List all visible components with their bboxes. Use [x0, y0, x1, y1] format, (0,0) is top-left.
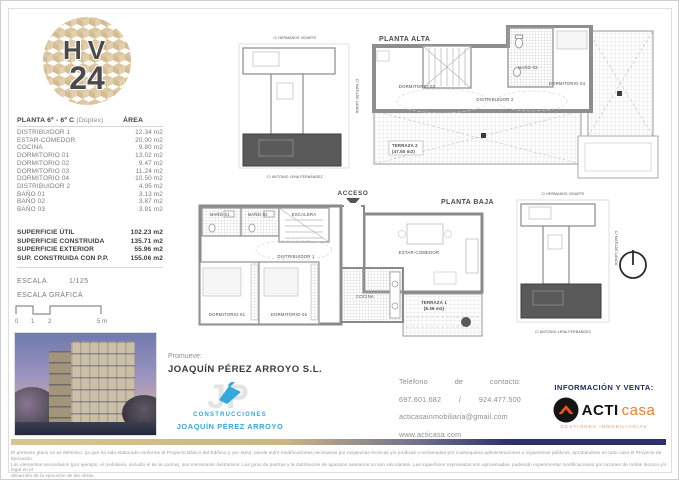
logo-text-bottom: 24 [69, 60, 105, 96]
hv24-logo: HV 24 [41, 15, 133, 107]
scale-line: ESCALA 1/125 [17, 278, 89, 285]
contact-email: acticasainmobiliaria@gmail.com [399, 412, 521, 421]
scale-tick-0: 0 [15, 319, 19, 325]
legal-disclaimer: El presente plano no es definitivo, ya q… [11, 450, 669, 479]
terraza1-label: TERRAZA 1 [421, 300, 447, 305]
table-row: DORMITORIO 0311.24 m2 [17, 168, 163, 176]
graphic-scale-bar: 0 1 2 5 m [15, 302, 125, 326]
entry-opening [344, 203, 361, 209]
terrace-marker [617, 91, 622, 96]
bano03-label: BAÑO 03 [518, 65, 538, 70]
scale-ratio: 1/125 [69, 278, 89, 285]
phone-numbers-line: 697.601.682 / 924.477.500 [399, 395, 521, 404]
street-label-top: C/ HERMANOS VISARTE [273, 36, 317, 40]
escalera-label: ESCALERA [292, 212, 317, 217]
terrace-planter [461, 317, 471, 327]
scale-label: ESCALA [17, 278, 47, 285]
street-ground [15, 422, 156, 435]
summary-row: SUPERFICIE ÚTIL102.23 m2 [17, 229, 163, 238]
dormitorio01-label: DORMITORIO 01 [209, 312, 246, 317]
summary-row: SUPERFICIE CONSTRUIDA135.71 m2 [17, 238, 163, 247]
table-row: DISTRIBUIDOR 24.95 m2 [17, 183, 163, 191]
phone-label-line: Teléfono de contacto: [399, 377, 521, 386]
distribuidor1-label: DISTRIBUIDOR 1 [277, 254, 315, 259]
bano02-label: BAÑO 02 [248, 212, 268, 217]
terraza2-area: (47.60 m2) [392, 149, 415, 154]
table-row: DORMITORIO 0410.50 m2 [17, 175, 163, 183]
contact-website: www.acticasa.com [399, 430, 521, 439]
scale-tick-5: 5 m [97, 319, 107, 325]
table-row: ESTAR-COMEDOR20.00 m2 [17, 137, 163, 145]
dormitorio04-label: DORMITORIO 04 [549, 81, 586, 86]
key-plan-lower: C/ HERMANOS VISARTE C/ MATILDE LANDA C/ … [511, 187, 623, 337]
acticasa-logo: ACTIcasa [539, 397, 669, 423]
table-row: DORMITORIO 0113.02 m2 [17, 152, 163, 160]
north-compass-icon [615, 247, 651, 283]
phone-1: 697.601.682 [399, 395, 441, 404]
planta-baja-plan: ACCESO PLANTA BAJA TERRAZA 1 (8.36 m2) E… [194, 184, 508, 346]
estar-comedor-label: ESTAR-COMEDOR [399, 250, 439, 255]
street-label-bottom: C/ ANTONIO LENA FERNÁNDEZ [535, 330, 591, 334]
terraza1-area: (8.36 m2) [424, 306, 445, 311]
summary-row: SUP. CONSTRUIDA CON P.P.155.06 m2 [17, 255, 163, 264]
bano01-label: BAÑO 01 [210, 212, 230, 217]
disclaimer-line: Los elementos secundarios (por ejemplo, … [11, 462, 669, 474]
dormitorio02-label: DORMITORIO 02 [271, 312, 308, 317]
agency-block: INFORMACIÓN Y VENTA: ACTIcasa GESTIONES … [539, 383, 669, 429]
phone-2: 924.477.500 [479, 395, 521, 404]
unit-highlight [243, 134, 341, 166]
table-row: DISTRIBUIDOR 112.34 m2 [17, 129, 163, 137]
building-render [14, 332, 157, 436]
table-title-note: (Dúplex) [76, 117, 103, 124]
agency-tagline: GESTIONES INMOBILIARIAS [539, 424, 669, 429]
constructor-line2: JOAQUÍN PÉREZ ARROYO [169, 422, 291, 431]
table-row: COCINA9.80 m2 [17, 144, 163, 152]
area-column-header: ÁREA [121, 117, 163, 124]
terrace-marker [481, 133, 486, 138]
disclaimer-line: El presente plano no es definitivo, ya q… [11, 450, 669, 462]
area-table: PLANTA 6º - 6º C (Dúplex) ÁREA DISTRIBUI… [17, 117, 163, 214]
graphic-scale-label: ESCALA GRÁFICA [17, 292, 83, 299]
street-label-top: C/ HERMANOS VISARTE [541, 192, 585, 196]
street-label-bottom: C/ ANTONIO LENA FERNÁNDEZ [267, 175, 323, 179]
table-row: BAÑO 023.87 m2 [17, 198, 163, 206]
planta-alta-plan: PLANTA ALTA TERRAZA 2 (47.60 m2) [367, 25, 675, 183]
plan-sheet-page: HV 24 PLANTA 6º - 6º C (Dúplex) ÁREA DIS… [0, 0, 679, 480]
building-side-face [49, 351, 71, 429]
planta-baja-title: PLANTA BAJA [441, 199, 494, 206]
distribuidor2-label: DISTRIBUIDOR 2 [476, 97, 514, 102]
acticasa-roof-icon [553, 397, 579, 423]
terraza2-label: TERRAZA 2 [392, 143, 418, 148]
brand-casa: casa [622, 402, 656, 419]
promoter-label: Promueve: [168, 353, 202, 360]
scale-tick-1: 1 [31, 319, 35, 325]
brand-acti: ACTI [582, 402, 619, 419]
summary-row: SUPERFICIE EXTERIOR55.96 m2 [17, 246, 163, 255]
scale-tick-2: 2 [48, 319, 52, 325]
trowel-icon [215, 382, 245, 408]
surface-summary: SUPERFICIE ÚTIL102.23 m2 SUPERFICIE CONS… [17, 229, 163, 268]
dormitorio03-label: DORMITORIO 03 [399, 84, 436, 89]
footer-gradient-bar [11, 439, 666, 445]
key-plan-upper: C/ HERMANOS VISARTE C/ MATILDE LANDA C/ … [233, 31, 363, 181]
street-label-right: C/ MATILDE LANDA [355, 79, 359, 114]
area-table-header: PLANTA 6º - 6º C (Dúplex) ÁREA [17, 117, 163, 127]
agency-header: INFORMACIÓN Y VENTA: [539, 383, 669, 392]
table-row: DORMITORIO 029.47 m2 [17, 160, 163, 168]
planta-alta-title: PLANTA ALTA [379, 36, 430, 43]
promoter-name: JOAQUÍN PÉREZ ARROYO S.L. [168, 364, 322, 375]
table-title: PLANTA 6º - 6º C (Dúplex) [17, 117, 104, 124]
table-row: BAÑO 033.91 m2 [17, 206, 163, 214]
constructor-logo: JP CONSTRUCCIONES JOAQUÍN PÉREZ ARROYO [169, 382, 291, 436]
constructor-line1: CONSTRUCCIONES [169, 412, 291, 418]
cocina-label: COCINA [356, 294, 374, 299]
disclaimer-line: desarrollo de la ejecución de las obras. [11, 473, 669, 479]
acceso-label: ACCESO [338, 190, 369, 197]
contact-block: Teléfono de contacto: 697.601.682 / 924.… [399, 377, 521, 447]
